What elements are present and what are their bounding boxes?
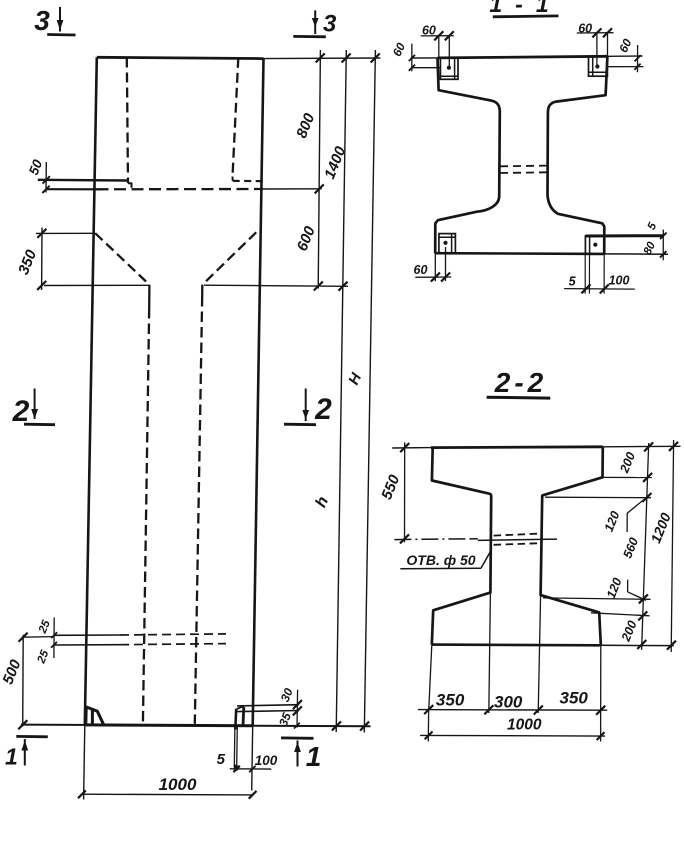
svg-text:350: 350 [436,691,465,710]
svg-text:3: 3 [323,11,337,38]
svg-text:100: 100 [255,753,278,768]
svg-text:1: 1 [5,744,18,770]
svg-text:2-2: 2-2 [494,367,547,398]
svg-text:1000: 1000 [159,775,197,794]
svg-text:1-1: 1-1 [489,0,561,17]
svg-text:2: 2 [314,393,332,426]
svg-text:ОТВ. ф 50: ОТВ. ф 50 [406,552,475,568]
svg-text:3: 3 [34,5,50,36]
svg-text:5: 5 [569,275,577,289]
svg-text:5: 5 [217,751,226,768]
svg-text:60: 60 [414,263,428,277]
svg-text:350: 350 [560,689,589,708]
svg-text:300: 300 [494,693,523,712]
svg-text:1: 1 [306,741,322,772]
svg-text:100: 100 [609,274,630,288]
svg-text:1000: 1000 [507,717,542,734]
